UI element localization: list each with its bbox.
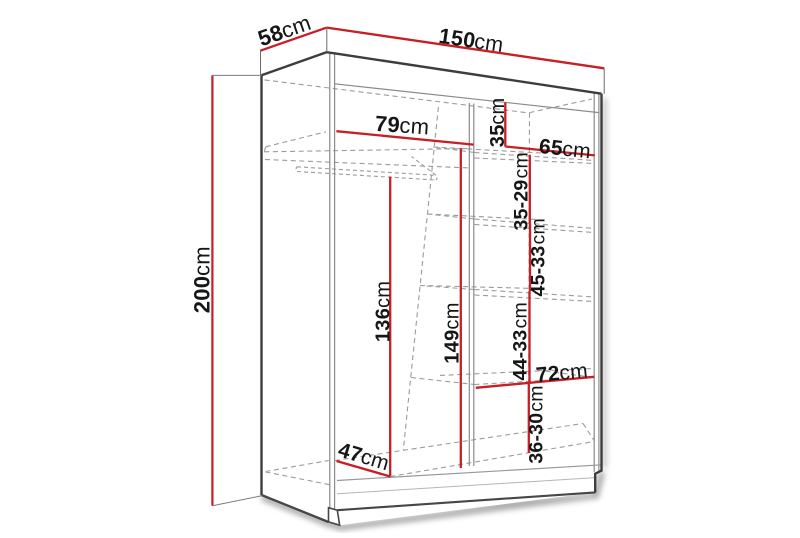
svg-text:cm: cm	[373, 281, 395, 308]
svg-text:79: 79	[374, 111, 401, 138]
svg-text:cm: cm	[561, 137, 592, 163]
svg-text:72: 72	[535, 362, 561, 387]
svg-text:cm: cm	[526, 385, 548, 411]
svg-text:cm: cm	[442, 302, 464, 329]
svg-text:cm: cm	[528, 218, 550, 244]
svg-text:65: 65	[538, 135, 564, 160]
svg-text:149: 149	[442, 329, 464, 363]
svg-text:cm: cm	[487, 98, 509, 125]
svg-text:cm: cm	[189, 246, 214, 276]
svg-text:136: 136	[373, 308, 395, 342]
svg-text:cm: cm	[473, 29, 505, 57]
svg-text:45-33: 45-33	[528, 246, 550, 297]
svg-text:36-30: 36-30	[526, 413, 548, 464]
svg-text:44-33: 44-33	[510, 330, 532, 381]
svg-text:cm: cm	[399, 112, 431, 139]
svg-text:cm: cm	[510, 152, 532, 178]
svg-text:cm: cm	[558, 359, 589, 385]
svg-text:200: 200	[189, 276, 214, 314]
svg-text:cm: cm	[510, 302, 532, 328]
svg-text:35: 35	[487, 124, 509, 147]
